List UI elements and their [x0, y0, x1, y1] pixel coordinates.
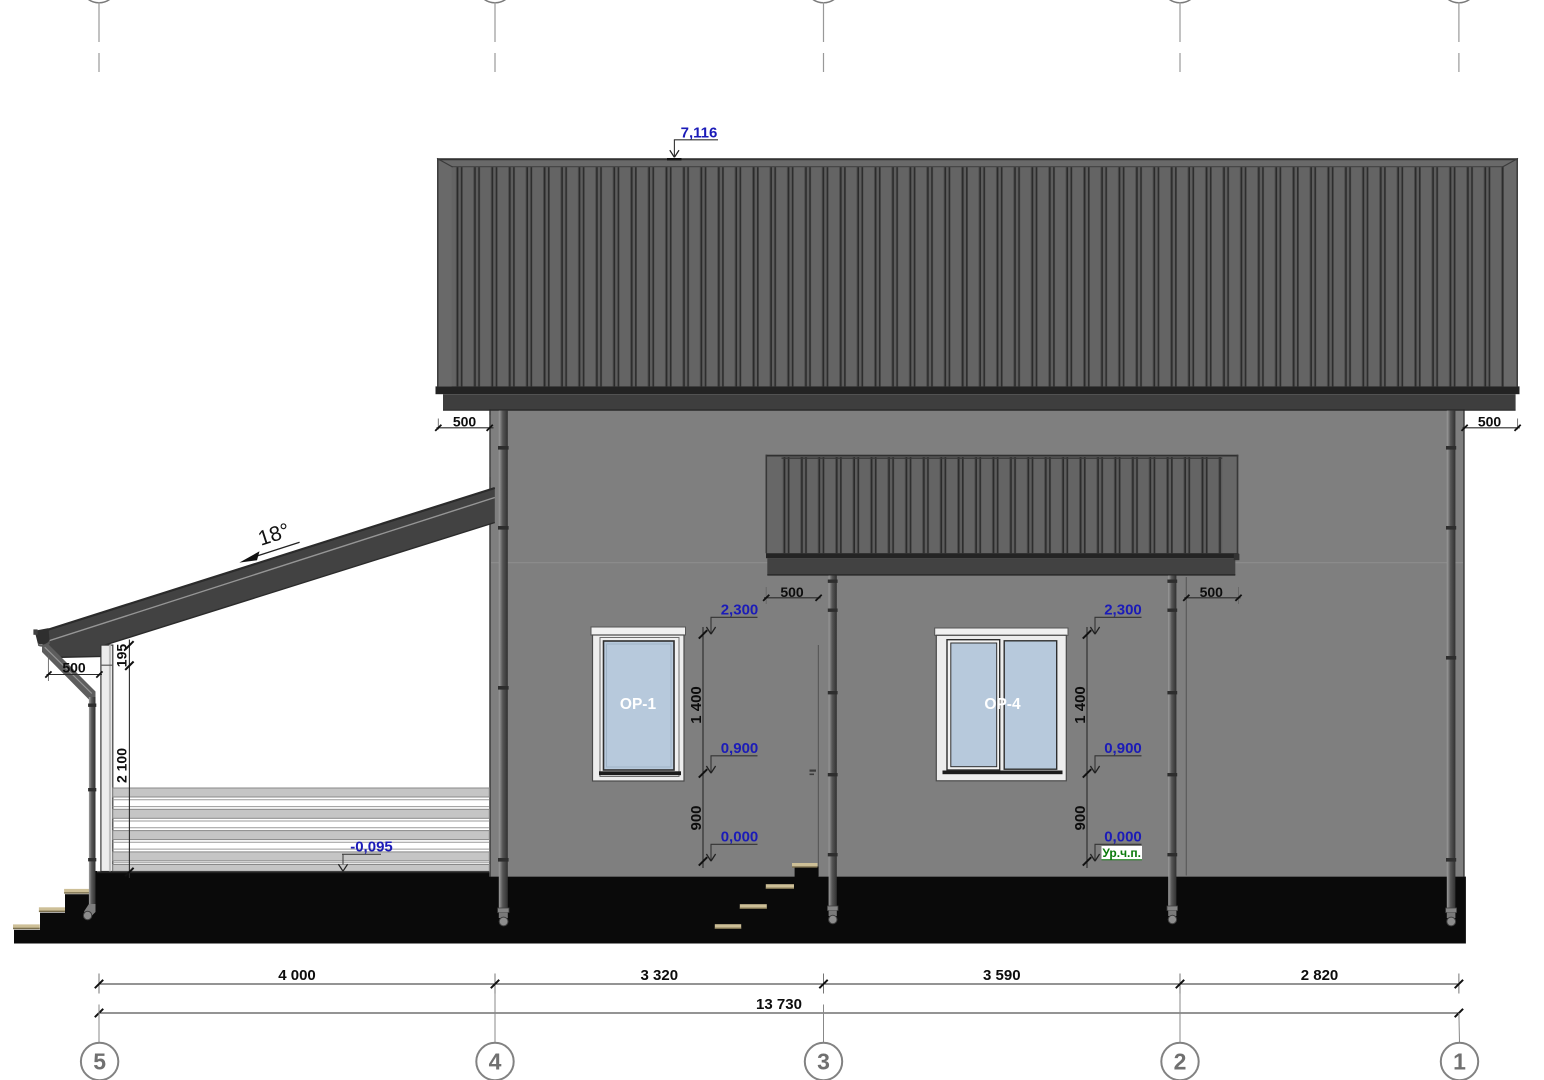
svg-text:1 400: 1 400 — [1072, 686, 1089, 724]
svg-text:7,116: 7,116 — [681, 125, 718, 142]
svg-text:3: 3 — [817, 1049, 830, 1075]
svg-text:0,000: 0,000 — [721, 829, 759, 846]
svg-text:1 400: 1 400 — [688, 686, 705, 724]
svg-text:ОР-1: ОР-1 — [620, 696, 657, 713]
svg-text:3 320: 3 320 — [641, 967, 679, 984]
svg-text:13 730: 13 730 — [756, 996, 802, 1013]
svg-text:2 100: 2 100 — [114, 748, 130, 783]
svg-text:-0,095: -0,095 — [350, 839, 393, 856]
svg-text:2 820: 2 820 — [1301, 967, 1339, 984]
svg-text:500: 500 — [453, 414, 477, 430]
svg-text:2: 2 — [1174, 1049, 1187, 1075]
svg-text:4: 4 — [489, 1049, 502, 1075]
svg-text:2,300: 2,300 — [721, 602, 759, 619]
svg-text:500: 500 — [62, 660, 86, 676]
svg-text:3 590: 3 590 — [983, 967, 1021, 984]
svg-text:5: 5 — [93, 1049, 106, 1075]
svg-text:Ур.ч.п.: Ур.ч.п. — [1102, 846, 1141, 860]
svg-text:195: 195 — [114, 644, 130, 668]
svg-text:0,900: 0,900 — [721, 740, 759, 757]
svg-text:900: 900 — [1072, 805, 1089, 830]
svg-text:0,900: 0,900 — [1104, 740, 1142, 757]
svg-text:2,300: 2,300 — [1104, 602, 1142, 619]
svg-text:ОР-4: ОР-4 — [984, 696, 1021, 713]
svg-text:500: 500 — [1478, 414, 1502, 430]
svg-text:1: 1 — [1453, 1049, 1466, 1075]
svg-text:900: 900 — [688, 805, 705, 830]
svg-text:0,000: 0,000 — [1104, 829, 1142, 846]
svg-text:4 000: 4 000 — [278, 967, 316, 984]
